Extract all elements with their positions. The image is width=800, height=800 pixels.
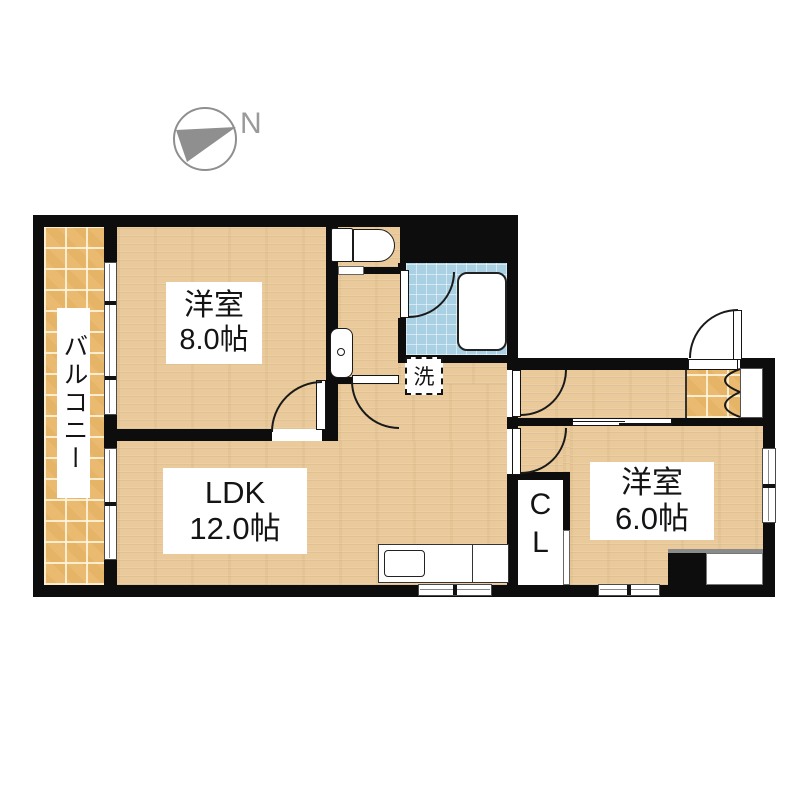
balcony-name: バルコニー xyxy=(59,333,88,473)
pillar-block-bottom-right xyxy=(668,553,706,585)
kitchen-sink-icon xyxy=(384,550,425,577)
window-tick xyxy=(627,585,631,595)
ldk-size: 12.0帖 xyxy=(189,511,280,547)
bedroom6-label: 洋室 6.0帖 xyxy=(590,462,714,540)
window-tick xyxy=(105,301,116,305)
laundry-label: 洗 xyxy=(414,361,435,391)
door-arc-entrance xyxy=(690,310,738,358)
closet-door xyxy=(563,530,570,585)
storage-counter xyxy=(706,553,763,585)
wall-east-right xyxy=(763,358,775,448)
genkan-edge-line xyxy=(685,370,687,418)
wall-spine xyxy=(507,215,518,370)
bedroom6-name: 洋室 xyxy=(621,465,683,501)
wall-balcony-divider xyxy=(104,227,117,262)
wall-toilet-washroom xyxy=(364,267,400,274)
window-tick xyxy=(763,484,775,488)
wall-bedroom8-ldk xyxy=(322,429,338,441)
sliding-door-panel-line xyxy=(619,423,671,425)
balcony-label: バルコニー xyxy=(57,308,90,498)
washing-machine-pan: 洗 xyxy=(405,357,443,395)
shoe-cabinet xyxy=(740,368,763,418)
window-tick xyxy=(105,502,116,506)
wall-hall-bedroom6 xyxy=(518,418,572,426)
bedroom8-size: 8.0帖 xyxy=(179,324,248,357)
wall-east-top xyxy=(518,358,688,370)
compass-north-label: N xyxy=(240,107,262,140)
door-leaf-hallway xyxy=(512,370,521,417)
window-tick xyxy=(105,376,116,380)
wall-bath-left xyxy=(398,263,406,270)
entrance-genkan-floor xyxy=(685,370,740,418)
sliding-door-panel-line xyxy=(573,421,625,423)
kitchen-counter-divider xyxy=(472,545,473,582)
toilet-bowl-icon xyxy=(353,229,395,262)
wall-closet-right xyxy=(563,472,570,530)
window-bedroom8 xyxy=(104,262,117,415)
wall-bedroom8-ldk xyxy=(104,429,272,441)
door-leaf-washroom xyxy=(352,375,399,384)
wall-left xyxy=(33,215,44,597)
entrance-door-leaf xyxy=(733,310,742,360)
kitchen-counter xyxy=(378,544,509,583)
door-leaf-bedroom6 xyxy=(512,428,521,475)
bedroom8-name: 洋室 xyxy=(184,289,244,324)
ldk-name: LDK xyxy=(205,475,265,511)
pillar-block-top xyxy=(400,217,512,263)
toilet-tank-icon xyxy=(331,228,353,262)
wall-bottom xyxy=(33,585,775,597)
closet-letter-c: C xyxy=(530,486,552,524)
closet-label: C L xyxy=(518,486,563,576)
bathtub-icon xyxy=(457,272,507,351)
wall-east-right xyxy=(763,523,775,597)
ldk-label: LDK 12.0帖 xyxy=(163,468,307,554)
entrance-door-threshold xyxy=(688,359,738,370)
floor-plan: 洗 洋室 8.0帖 LDK 12.0帖 洋室 6.0帖 バルコニー C L N xyxy=(0,0,800,800)
wall-hall-bedroom6 xyxy=(672,418,775,426)
window-tick xyxy=(453,585,457,595)
washbasin-faucet-icon xyxy=(337,348,345,356)
door-leaf-bathroom xyxy=(400,270,409,318)
toilet-sliding-door xyxy=(338,266,364,275)
hallway-floor xyxy=(518,370,685,418)
sliding-door-bedroom6 xyxy=(572,418,672,426)
bedroom6-nook-floor xyxy=(518,426,563,474)
bedroom8-label: 洋室 8.0帖 xyxy=(166,282,262,364)
wall-balcony-divider xyxy=(104,560,117,585)
window-line xyxy=(109,264,110,413)
bedroom6-size: 6.0帖 xyxy=(615,501,689,537)
wall-washroom-bottom xyxy=(338,377,352,384)
door-leaf-bedroom8 xyxy=(316,380,326,430)
compass-icon: N xyxy=(174,107,262,170)
closet-letter-l: L xyxy=(532,524,549,562)
